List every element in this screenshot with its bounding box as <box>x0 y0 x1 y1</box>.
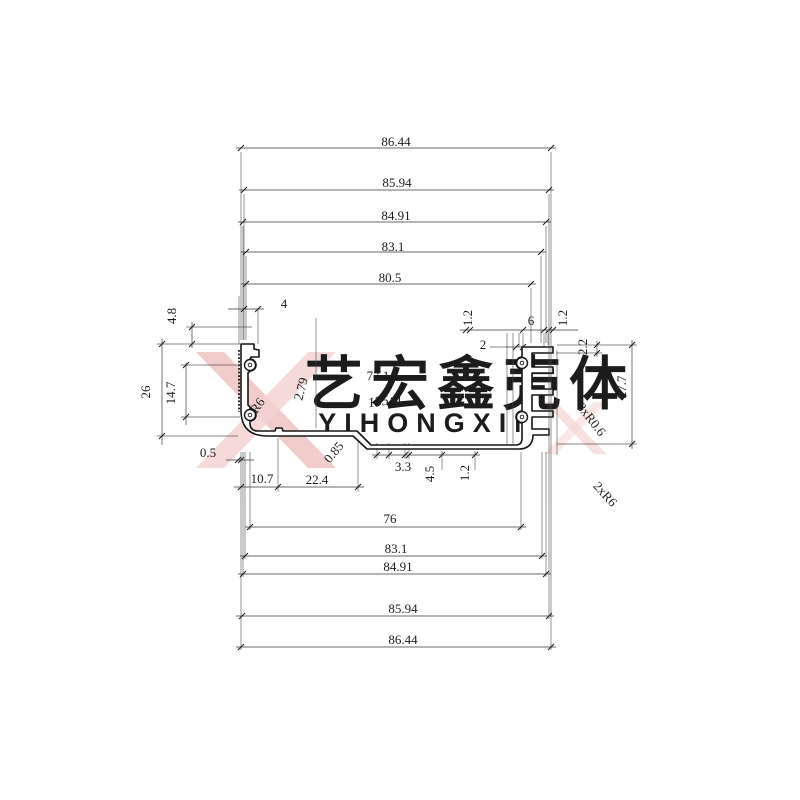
dim-4-5: 4.5 <box>422 466 437 482</box>
dim-2: 2 <box>480 337 487 352</box>
dim-top-5: 80.5 <box>379 270 402 285</box>
dim-2xr6: 2xR6 <box>590 479 620 510</box>
dim-26: 26 <box>138 385 153 399</box>
dim-bottom-5: 86.44 <box>388 632 418 647</box>
dim-10-7: 10.7 <box>251 471 274 486</box>
dim-bottom-1: 76 <box>384 511 398 526</box>
technical-drawing: 艺宏鑫壳体 YIHONGXIN 86.44 85.94 8 <box>0 0 800 800</box>
dim-2-2: 2.2 <box>575 339 590 355</box>
dim-27-7: 27.7 <box>614 375 629 398</box>
drawing-page: 艺宏鑫壳体 YIHONGXIN 86.44 85.94 8 <box>0 0 800 800</box>
dim-top-2: 85.94 <box>382 175 412 190</box>
dim-1-2-left: 1.2 <box>460 310 475 326</box>
dim-top-4: 83.1 <box>382 239 405 254</box>
dim-1-2-right: 1.2 <box>555 310 570 326</box>
dim-bottom-3: 84.91 <box>383 559 412 574</box>
dim-4-8: 4.8 <box>164 308 179 324</box>
dim-3-3: 3.3 <box>395 459 411 474</box>
dim-14-7: 14.7 <box>163 381 178 404</box>
dim-0-5: 0.5 <box>200 445 216 460</box>
dim-4: 4 <box>281 296 288 311</box>
dim-6: 6 <box>528 313 535 328</box>
dim-22-4: 22.4 <box>306 472 329 487</box>
dim-1-2-bottom: 1.2 <box>457 465 472 481</box>
dim-top-3: 84.91 <box>381 208 410 223</box>
dim-77-1: 77.1 <box>367 368 390 383</box>
dim-bottom-4: 85.94 <box>388 601 418 616</box>
boss-circle <box>245 360 256 371</box>
dim-top-1: 86.44 <box>381 134 411 149</box>
boss-circle <box>517 358 528 369</box>
dim-bottom-2: 83.1 <box>385 541 408 556</box>
boss-circle <box>517 412 528 423</box>
